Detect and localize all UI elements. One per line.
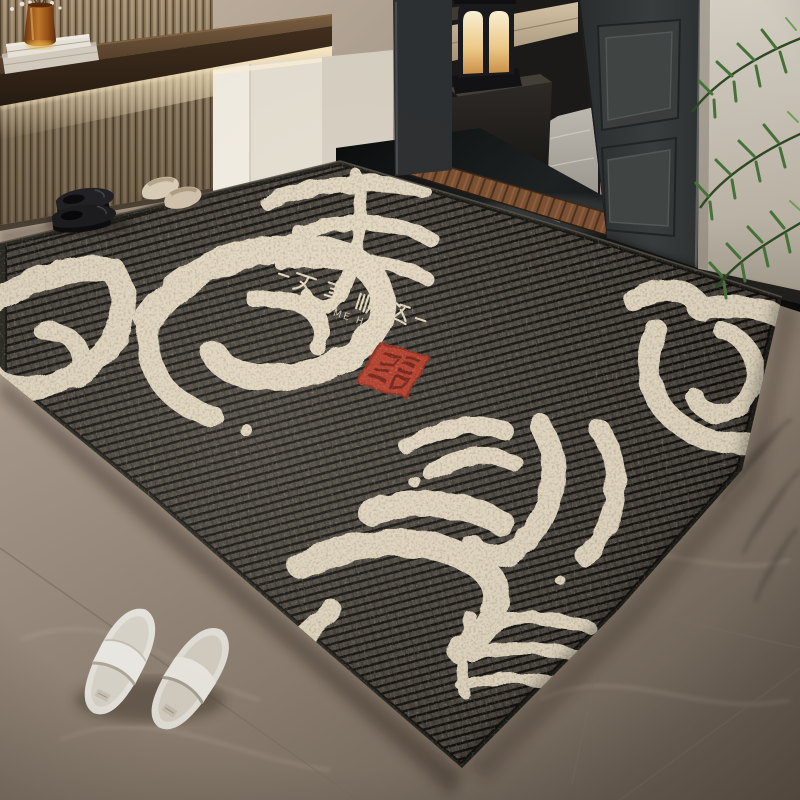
- entryway-scene: WELCOME HOME: [0, 0, 800, 800]
- vignette-overlay: [0, 0, 800, 800]
- scene-canvas: WELCOME HOME: [0, 0, 800, 800]
